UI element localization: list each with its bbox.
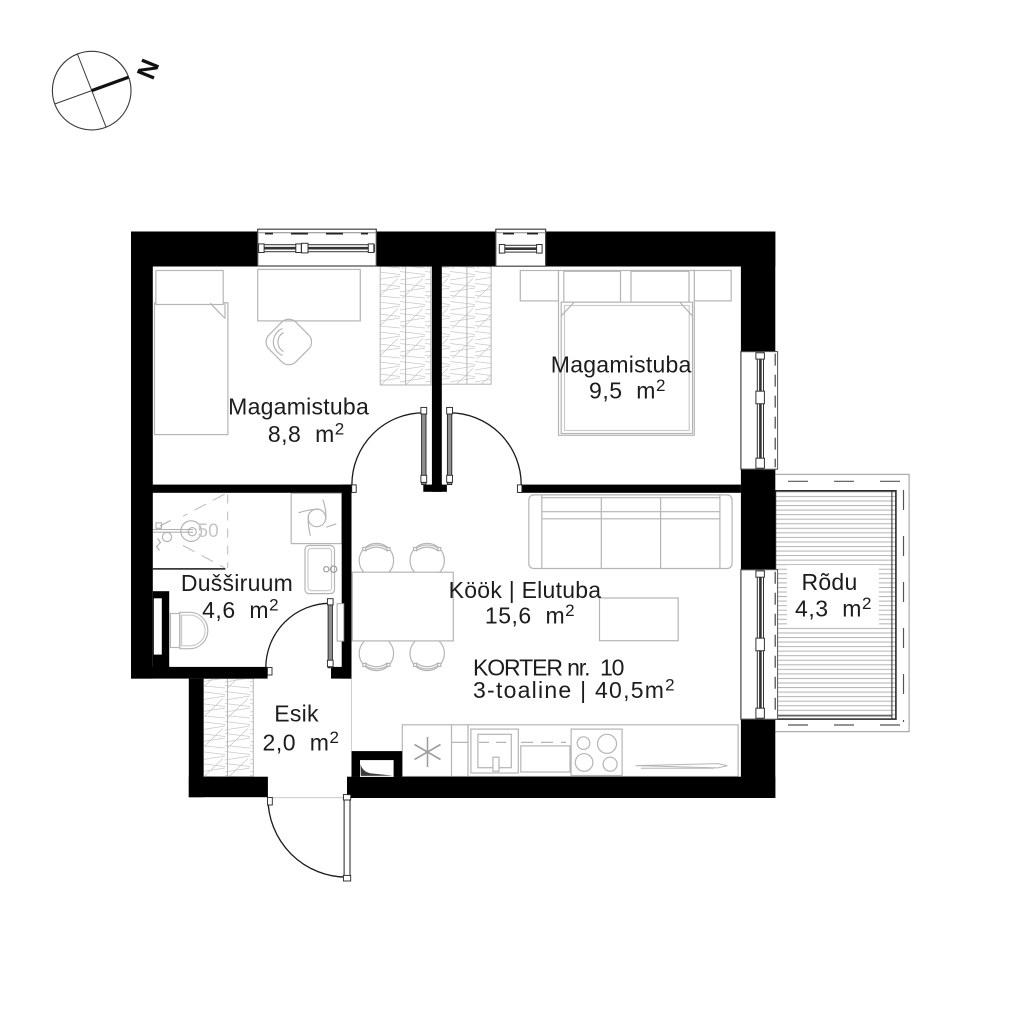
svg-text:3-toaline | 40,5m2: 3-toaline | 40,5m2	[473, 676, 676, 704]
svg-text:Magamistuba: Magamistuba	[228, 394, 369, 420]
svg-text:8,8 m2: 8,8 m2	[268, 420, 345, 448]
svg-text:2,0 m2: 2,0 m2	[263, 728, 340, 756]
svg-text:4,6 m2: 4,6 m2	[202, 596, 279, 624]
svg-text:Köök | Elutuba: Köök | Elutuba	[449, 577, 602, 603]
svg-text:Dušširuum: Dušširuum	[181, 570, 293, 596]
svg-text:50: 50	[198, 521, 219, 542]
svg-text:Magamistuba: Magamistuba	[551, 352, 692, 378]
svg-text:9,5 m2: 9,5 m2	[589, 376, 666, 404]
svg-text:4,3 m2: 4,3 m2	[795, 594, 872, 622]
svg-text:15,6 m2: 15,6 m2	[485, 601, 575, 629]
svg-text:Esik: Esik	[274, 700, 319, 726]
svg-text:Rõdu: Rõdu	[802, 569, 858, 595]
